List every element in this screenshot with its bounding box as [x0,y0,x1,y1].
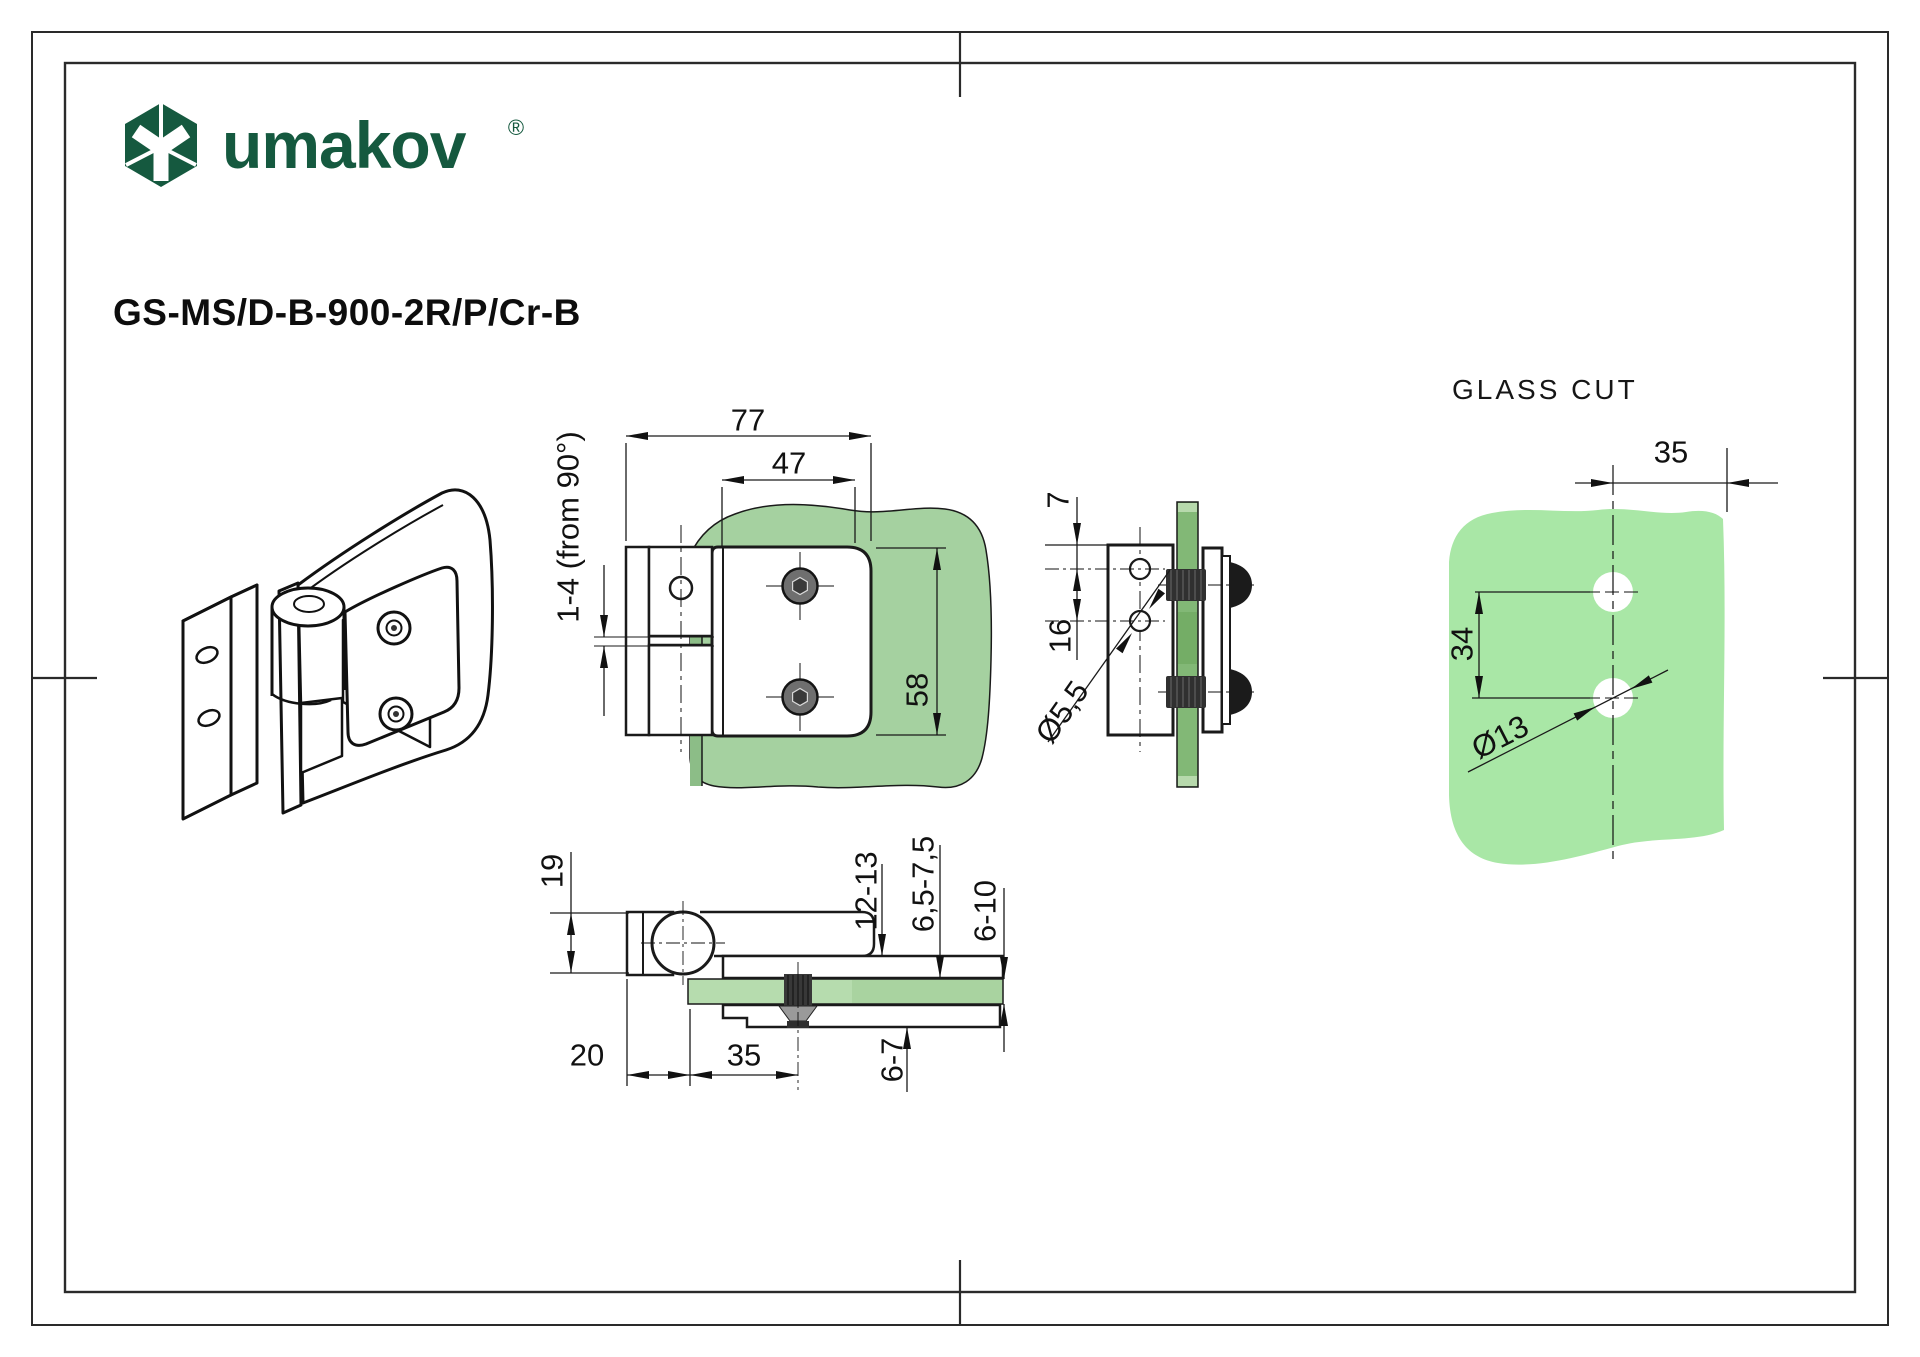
datasheet-page: umakov ® GS-MS/D-B-900-2R/P/Cr-B 77 47 5… [0,0,1920,1357]
dim-top-pivot-offset: 20 [570,1040,604,1071]
glass-cut-view [1449,448,1778,865]
glass-cut-panel [1449,509,1725,865]
dim-front-width-total: 77 [731,405,765,436]
dim-front-gap-adjust: 1-4 (from 90°) [553,431,584,623]
dim-cut-edge-distance: 35 [1654,437,1688,468]
dim-front-width-inner: 47 [772,448,806,479]
dim-top-hole-distance: 35 [727,1040,761,1071]
glass-cut-title: GLASS CUT [1452,374,1638,406]
isometric-view [183,490,492,819]
part-number: GS-MS/D-B-900-2R/P/Cr-B [113,292,581,334]
dim-top-lower-plate-thickness: 6-7 [877,1038,908,1083]
dim-side-hole-spacing: 16 [1045,619,1076,653]
brand-wordmark: umakov [222,107,465,183]
side-glass [1177,502,1198,787]
front-view [594,432,991,788]
dim-top-glass-thickness: 6-10 [970,880,1001,942]
dim-top-clamp-thickness: 12-13 [851,851,882,930]
dim-top-plate-thickness: 6,5-7,5 [908,836,939,933]
dim-top-knuckle-height: 19 [537,854,568,888]
dim-cut-hole-spacing: 34 [1447,627,1478,661]
brand-logo-icon [125,103,197,187]
drawing-canvas [0,0,1920,1357]
dim-front-height: 58 [902,673,933,707]
dim-side-edge-to-hole: 7 [1043,491,1074,508]
registered-trademark-symbol: ® [508,115,524,141]
